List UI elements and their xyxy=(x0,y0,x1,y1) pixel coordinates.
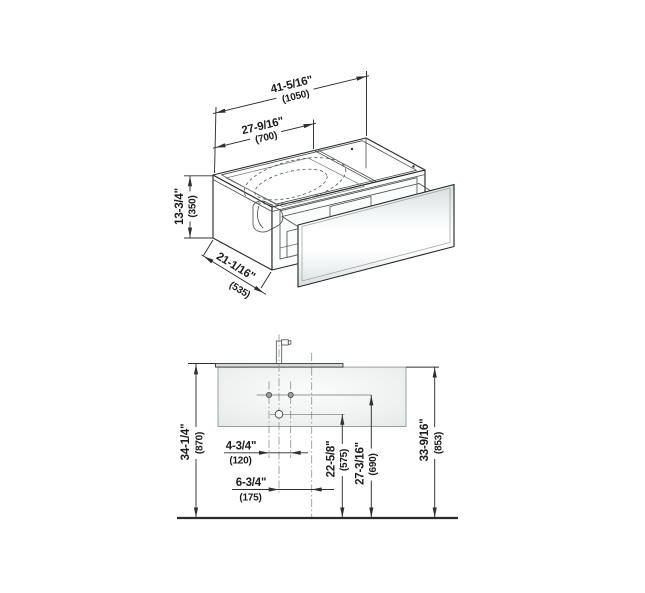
dim-faucet-spacing: 4-3/4" (120) xyxy=(224,441,308,467)
technical-drawing: 41-5/16" (1050) 27-9/16" (700) xyxy=(0,0,645,593)
drain-pipe xyxy=(276,340,291,364)
dim-height-left-mm: (870) xyxy=(195,432,206,454)
faucet-hole-right xyxy=(288,392,293,397)
dim-drain-offset: 6-3/4" (175) xyxy=(232,477,334,503)
dim-cabinet-height-mm: (350) xyxy=(188,195,199,217)
dim-faucet-height-inch: 27-3/16" xyxy=(355,442,367,485)
cover-mark xyxy=(351,148,353,150)
dim-cabinet-height: 13-3/4" (350) xyxy=(174,176,212,238)
dim-drain-height: 22-5/8" (575) xyxy=(326,414,350,518)
dim-height-right-mm: (853) xyxy=(434,432,445,454)
dim-faucet-height-mm: (690) xyxy=(368,453,379,475)
isometric-view: 41-5/16" (1050) 27-9/16" (700) xyxy=(174,71,454,301)
dim-height-right-inch: 33-9/16" xyxy=(419,419,431,462)
dim-basin-width: 27-9/16" (700) xyxy=(213,115,316,149)
dim-height-left: 34-1/4" (870) xyxy=(180,364,205,518)
dim-cabinet-height-inch: 13-3/4" xyxy=(174,188,186,225)
front-elevation-view: 34-1/4" (870) 33-9/16" (853) xyxy=(177,335,458,519)
technical-drawing-page: 41-5/16" (1050) 27-9/16" (700) xyxy=(0,0,645,593)
drain-hole xyxy=(275,411,283,419)
faucet-hole-left xyxy=(266,392,271,397)
dim-faucet-spacing-mm: (120) xyxy=(229,456,251,467)
dim-drain-offset-mm: (175) xyxy=(239,493,261,504)
dim-drain-height-inch: 22-5/8" xyxy=(326,441,338,478)
dim-drain-offset-inch: 6-3/4" xyxy=(236,477,266,489)
dim-drain-height-mm: (575) xyxy=(339,449,350,471)
dim-height-left-inch: 34-1/4" xyxy=(180,424,192,461)
dim-faucet-spacing-inch: 4-3/4" xyxy=(226,441,256,453)
cover-mark xyxy=(412,165,414,167)
dim-height-right: 33-9/16" (853) xyxy=(419,367,444,518)
